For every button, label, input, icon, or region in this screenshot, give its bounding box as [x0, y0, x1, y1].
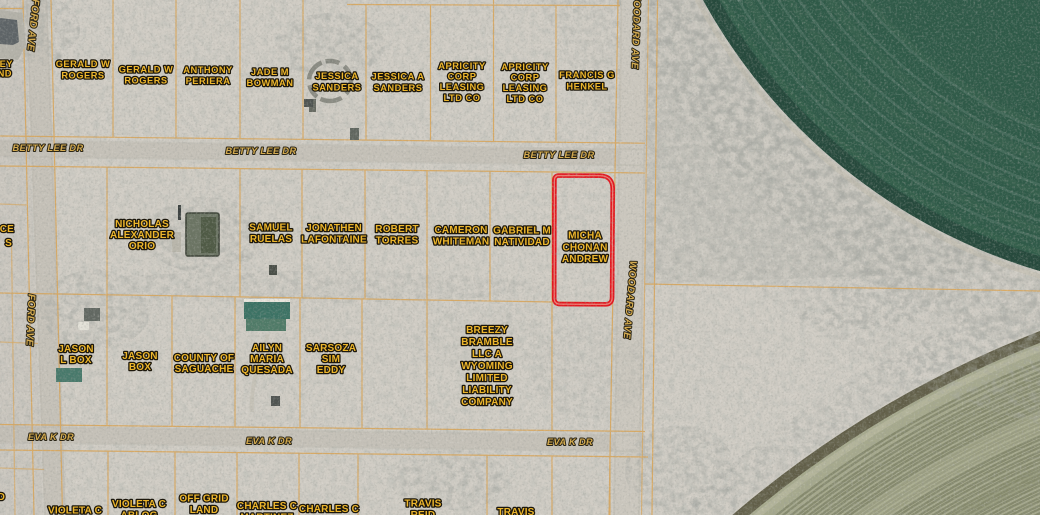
svg-text:ANTHONYPERIERA: ANTHONYPERIERA	[183, 65, 233, 86]
svg-text:MICHACHONANANDREW: MICHACHONANANDREW	[562, 231, 609, 266]
svg-text:EVA K DR: EVA K DR	[547, 437, 593, 447]
svg-text:CHARLES CMARTINEZ: CHARLES CMARTINEZ	[237, 501, 297, 515]
svg-text:S: S	[5, 238, 12, 249]
svg-text:D: D	[0, 492, 5, 503]
svg-text:JASONL BOX: JASONL BOX	[58, 344, 93, 366]
svg-text:EVA K DR: EVA K DR	[28, 432, 74, 442]
svg-text:BETTY LEE DR: BETTY LEE DR	[226, 146, 297, 156]
svg-text:VIOLETA C: VIOLETA C	[48, 506, 102, 515]
svg-text:COUNTY OFSAGUACHE: COUNTY OFSAGUACHE	[174, 353, 235, 375]
svg-text:TRAVIS: TRAVIS	[497, 507, 534, 515]
svg-text:FORD AVE: FORD AVE	[23, 294, 36, 347]
svg-text:GABRIEL MNATIVIDAD: GABRIEL MNATIVIDAD	[493, 226, 551, 249]
svg-text:APRICITYCORPLEASINGLTD CO: APRICITYCORPLEASINGLTD CO	[501, 62, 549, 104]
svg-text:BETTY LEE DR: BETTY LEE DR	[13, 143, 84, 153]
svg-text:SAMUELRUELAS: SAMUELRUELAS	[249, 223, 292, 246]
svg-text:ND: ND	[0, 69, 12, 79]
svg-text:JESSICASANDERS: JESSICASANDERS	[313, 71, 362, 93]
svg-text:JESSICA ASANDERS: JESSICA ASANDERS	[372, 72, 425, 94]
svg-text:ROBERTTORRES: ROBERTTORRES	[375, 224, 418, 247]
svg-text:EY: EY	[0, 59, 13, 69]
svg-text:BREEZYBRAMBLELLC AWYOMINGLIMIT: BREEZYBRAMBLELLC AWYOMINGLIMITEDLIABILIT…	[461, 325, 513, 408]
svg-text:JADE MBOWMAN: JADE MBOWMAN	[247, 67, 294, 88]
svg-text:WOODARD AVE: WOODARD AVE	[629, 0, 643, 70]
svg-text:GERALD WROGERS: GERALD WROGERS	[119, 65, 174, 86]
svg-text:FRANCIS GHENKEL: FRANCIS GHENKEL	[559, 70, 615, 92]
svg-text:CE: CE	[0, 224, 14, 235]
svg-text:BETTY LEE DR: BETTY LEE DR	[524, 150, 595, 160]
svg-text:EVA K DR: EVA K DR	[246, 436, 292, 446]
svg-text:GERALD WROGERS: GERALD WROGERS	[56, 59, 111, 80]
svg-text:CHARLES C: CHARLES C	[299, 504, 359, 515]
svg-text:JONATHENLAFONTAINE: JONATHENLAFONTAINE	[301, 223, 367, 246]
svg-text:APRICITYCORPLEASINGLTD CO: APRICITYCORPLEASINGLTD CO	[438, 61, 486, 103]
svg-text:CAMERONWHITEMAN: CAMERONWHITEMAN	[433, 225, 490, 248]
